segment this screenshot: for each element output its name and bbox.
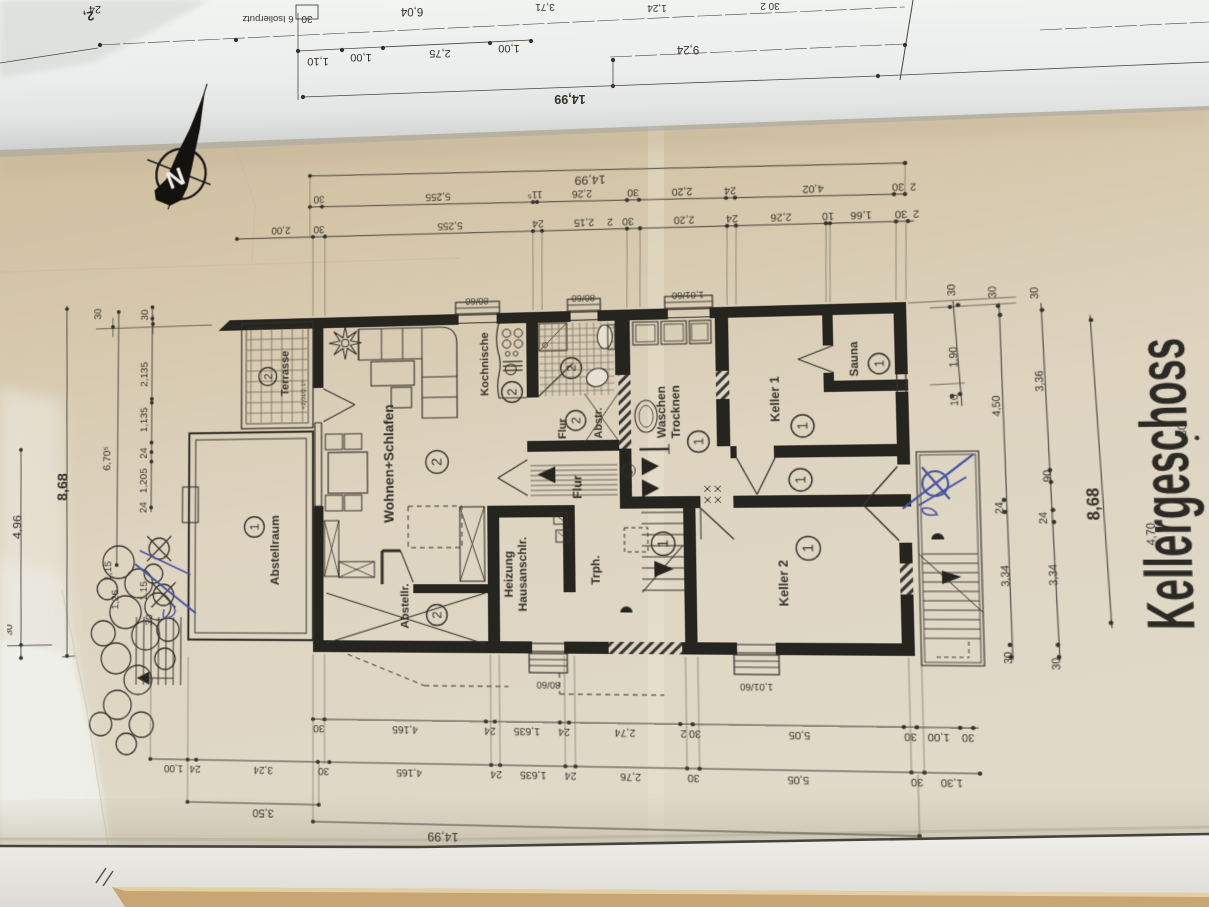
svg-text:80/60: 80/60 [465, 296, 489, 308]
svg-text:10: 10 [948, 394, 960, 406]
svg-text:24: 24 [490, 769, 502, 781]
svg-text:2,26: 2,26 [572, 188, 592, 200]
svg-text:1: 1 [248, 523, 262, 530]
svg-text:Heizung: Heizung [502, 551, 516, 598]
svg-text:5,05: 5,05 [787, 774, 809, 786]
svg-text:1,15: 1,15 [103, 561, 113, 581]
svg-text:30: 30 [314, 224, 325, 235]
svg-text:24: 24 [190, 763, 201, 774]
svg-text:3,24: 3,24 [254, 764, 273, 775]
svg-text:30: 30 [1028, 287, 1041, 299]
svg-text:Keller 1: Keller 1 [768, 376, 783, 422]
svg-text:2: 2 [570, 417, 584, 424]
svg-text:1,00: 1,00 [164, 763, 183, 774]
svg-text:2,74: 2,74 [614, 727, 635, 739]
svg-text:11⁵: 11⁵ [527, 189, 542, 200]
svg-text:4,165: 4,165 [392, 724, 418, 736]
svg-text:Trocknen: Trocknen [669, 385, 684, 439]
svg-text:30: 30 [313, 723, 324, 734]
svg-text:5,255: 5,255 [425, 191, 450, 203]
svg-text:1: 1 [792, 476, 809, 484]
svg-text:1,205: 1,205 [138, 468, 149, 493]
svg-text:1,135: 1,135 [139, 407, 149, 432]
svg-text:24: 24 [726, 213, 738, 225]
svg-text:1: 1 [654, 540, 671, 548]
svg-text:Flur: Flur [557, 418, 570, 439]
svg-text:Keller 2: Keller 2 [777, 560, 792, 606]
svg-text:30: 30 [986, 286, 998, 298]
svg-text:30: 30 [93, 308, 103, 319]
svg-text:1,01/60: 1,01/60 [740, 681, 774, 693]
svg-text:1,635: 1,635 [514, 726, 540, 738]
svg-text:Hausanschlr.: Hausanschlr. [516, 537, 530, 612]
svg-text:Wohnen+Schlafen: Wohnen+Schlafen [381, 404, 397, 523]
svg-text:2: 2 [564, 364, 579, 372]
svg-text:2,20: 2,20 [674, 214, 695, 226]
svg-text:2,20: 2,20 [672, 186, 693, 198]
svg-text:Sauna: Sauna [848, 341, 862, 377]
svg-text:1,01/60: 1,01/60 [671, 289, 704, 301]
svg-text:3,34: 3,34 [999, 565, 1012, 586]
svg-text:14,99: 14,99 [574, 172, 605, 186]
svg-text:4,02: 4,02 [802, 183, 823, 195]
svg-text:30: 30 [911, 776, 924, 788]
svg-text:2: 2 [430, 611, 444, 618]
svg-text:2: 2 [913, 208, 919, 220]
svg-text:30: 30 [1050, 658, 1063, 670]
svg-text:24: 24 [993, 502, 1006, 514]
svg-text:24: 24 [565, 770, 577, 782]
svg-text:1,90: 1,90 [947, 347, 960, 368]
svg-text:24: 24 [724, 185, 736, 197]
svg-text:8,68: 8,68 [55, 473, 71, 501]
svg-text:8,68: 8,68 [1084, 488, 1105, 521]
svg-text:10: 10 [822, 210, 834, 222]
svg-text:2: 2 [428, 458, 444, 466]
svg-text:Trph.: Trph. [589, 555, 603, 585]
svg-text:5,255: 5,255 [437, 220, 462, 232]
svg-text:1,635: 1,635 [520, 769, 546, 781]
svg-text:4,70: 4,70 [1145, 522, 1160, 545]
svg-text:30: 30 [318, 766, 329, 777]
svg-text:24: 24 [484, 725, 496, 737]
svg-text:30: 30 [144, 614, 154, 625]
svg-text:2: 2 [680, 728, 686, 740]
svg-text:24: 24 [558, 726, 570, 738]
svg-text:4,165: 4,165 [396, 767, 422, 779]
svg-text:30: 30 [622, 216, 634, 227]
svg-text:2,135: 2,135 [139, 362, 149, 387]
svg-text:1,30: 1,30 [941, 777, 964, 789]
svg-text:Kochnische: Kochnische [479, 332, 492, 396]
svg-text:24: 24 [138, 502, 148, 513]
svg-text:24: 24 [532, 218, 544, 229]
svg-text:30: 30 [962, 732, 975, 744]
svg-text:14,99: 14,99 [427, 829, 458, 843]
svg-text:30: 30 [140, 309, 150, 320]
svg-text:2,00: 2,00 [271, 225, 290, 236]
svg-text:30: 30 [892, 181, 905, 193]
svg-text:2,76: 2,76 [620, 771, 641, 783]
svg-text:30: 30 [687, 772, 699, 784]
svg-text:1,66: 1,66 [850, 209, 872, 221]
svg-text:Terrasse: Terrasse [280, 350, 292, 396]
svg-text:Abstellraum: Abstellraum [269, 515, 282, 585]
svg-text:Abstellr.: Abstellr. [400, 583, 412, 628]
svg-text:Flur: Flur [571, 474, 585, 498]
svg-text:4,50: 4,50 [990, 395, 1003, 416]
svg-text:4,96: 4,96 [12, 515, 24, 539]
svg-text:1: 1 [794, 422, 811, 430]
svg-text:1,00: 1,00 [928, 731, 950, 743]
svg-text:90: 90 [1041, 470, 1054, 482]
svg-text:80/60: 80/60 [536, 679, 560, 691]
svg-text:30: 30 [627, 187, 639, 198]
svg-text:2,26: 2,26 [770, 211, 791, 223]
svg-text:Abstr.: Abstr. [593, 407, 606, 438]
svg-text:5,05: 5,05 [789, 729, 811, 741]
svg-text:1: 1 [873, 360, 887, 367]
svg-text:1,26: 1,26 [110, 590, 120, 610]
svg-text:1,15: 1,15 [138, 581, 149, 601]
svg-text:80/60: 80/60 [571, 292, 595, 304]
svg-text:24: 24 [1037, 512, 1050, 524]
svg-text:3,50: 3,50 [252, 806, 274, 819]
svg-text:3,34: 3,34 [1047, 564, 1060, 585]
svg-text:2: 2 [263, 373, 276, 380]
svg-text:3,36: 3,36 [1033, 370, 1046, 391]
svg-text:30: 30 [945, 284, 957, 296]
svg-text:30: 30 [1002, 652, 1015, 664]
svg-text:2: 2 [505, 388, 519, 395]
svg-text:30: 30 [1176, 424, 1189, 436]
svg-text:2,15: 2,15 [574, 217, 594, 229]
svg-text:Kellergeschoss: Kellergeschoss [1125, 337, 1209, 630]
svg-text:2: 2 [910, 181, 916, 193]
svg-text:2: 2 [607, 216, 613, 227]
svg-text:24: 24 [139, 448, 149, 459]
svg-text:30: 30 [314, 194, 325, 205]
svg-text:1: 1 [799, 544, 817, 552]
svg-text:+2,01/2,1⁵: +2,01/2,1⁵ [300, 380, 307, 410]
svg-text:1: 1 [691, 438, 706, 446]
svg-text:30: 30 [895, 208, 908, 220]
svg-text:6,70⁵: 6,70⁵ [102, 446, 113, 471]
